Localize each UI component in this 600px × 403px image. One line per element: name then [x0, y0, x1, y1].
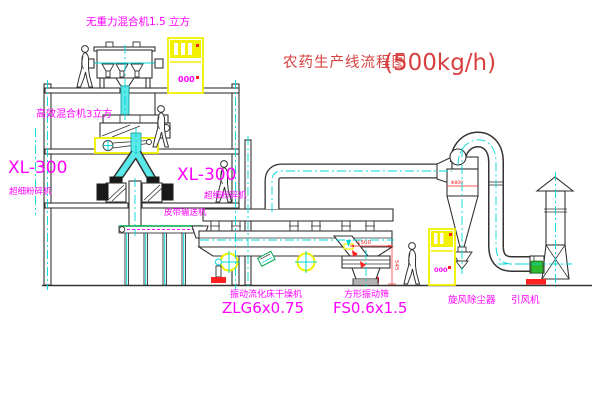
- cabinet-display: 000: [178, 75, 195, 84]
- induced-draft-fan: [526, 177, 573, 285]
- dryer-bellows: [210, 221, 375, 231]
- indicator-light: [449, 233, 452, 236]
- person-figure: [404, 243, 420, 284]
- conveyor-legs: [125, 233, 186, 285]
- fan-motor: [531, 261, 543, 273]
- pulverizer-right: [142, 177, 173, 202]
- indicator-light: [196, 76, 199, 79]
- cabinet-display: 000: [434, 266, 448, 274]
- floor-slab-1: [45, 88, 120, 93]
- pulverizer-left: [97, 177, 126, 202]
- dimension-length: 1500: [357, 240, 371, 246]
- label-gravity-mixer: 无重力混合机1.5 立方: [86, 15, 190, 28]
- fan-base: [526, 279, 546, 285]
- gravity-free-mixer: [86, 42, 163, 116]
- title-capacity: (500kg/h): [384, 50, 496, 76]
- indicator-light: [448, 266, 451, 269]
- label-fan: 引风机: [511, 294, 540, 306]
- control-cabinet-top: 000: [168, 38, 203, 93]
- label-high-mixer: 高效混合机3立方: [36, 107, 112, 120]
- label-dryer-model: ZLG6x0.75: [222, 299, 304, 317]
- label-cyclone: 旋风除尘器: [448, 294, 496, 306]
- mixer-paddles: [102, 64, 143, 77]
- label-screen-model: FS0.6x1.5: [333, 299, 407, 317]
- floor-slab-3: [45, 203, 128, 208]
- belt-conveyor: [119, 226, 203, 285]
- cyclone-dimension: Φ800: [451, 180, 463, 186]
- indicator-light: [196, 44, 199, 47]
- y-branch-duct: [117, 153, 152, 179]
- label-mill-left-name: 超细粉碎机: [9, 186, 52, 197]
- label-mill-mid-name: 超细粉碎机: [204, 190, 247, 201]
- rain-cap: [537, 177, 573, 191]
- control-cabinet-right: 000: [429, 229, 455, 285]
- drawing-canvas: 000: [0, 0, 600, 403]
- label-mill-left-model: XL-300: [8, 158, 67, 178]
- drawing-title: 农药生产线流程图 (500kg/h): [283, 50, 496, 76]
- dryer-hood: [203, 209, 393, 221]
- dryer-exhaust-duct: [272, 157, 452, 209]
- label-belt-conveyor: 皮带输送机: [164, 207, 207, 218]
- label-mill-mid-model: XL-300: [177, 165, 236, 185]
- process-flow-drawing: 000: [0, 0, 600, 403]
- dimension-height: 545: [393, 260, 399, 271]
